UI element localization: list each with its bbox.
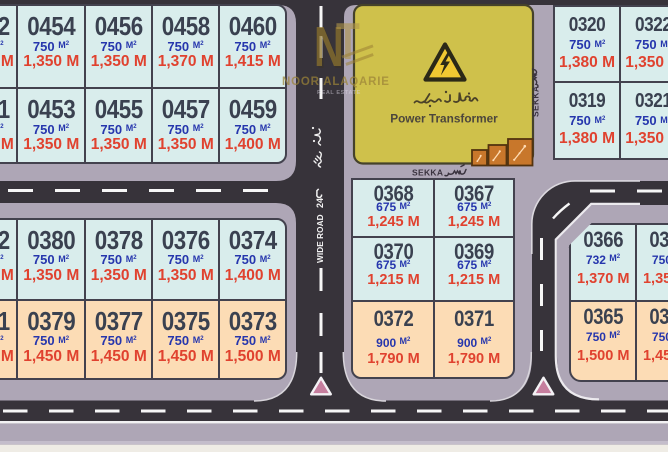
svg-text:Power Transformer: Power Transformer xyxy=(390,112,498,126)
svg-text:SEKKA: SEKKA xyxy=(412,168,443,178)
